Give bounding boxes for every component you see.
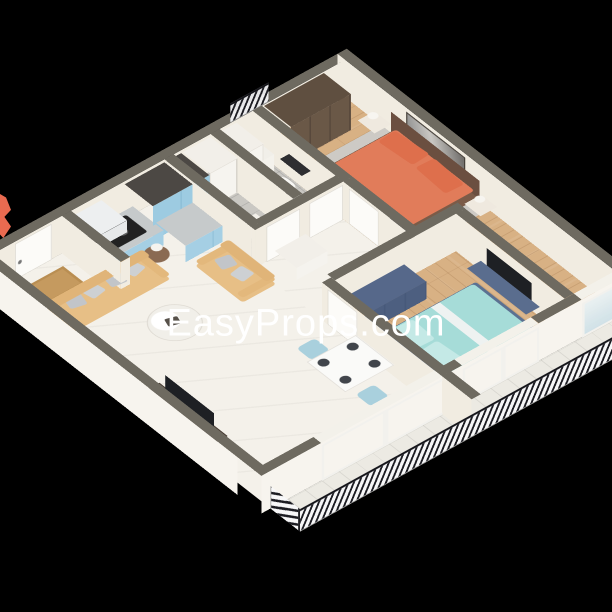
clipped-logo-fragment — [0, 194, 11, 238]
watermark-text: EasyProps.com — [166, 303, 445, 346]
floorplan-render-stage: EasyProps.com — [0, 0, 612, 612]
apartment-plan — [0, 97, 612, 502]
